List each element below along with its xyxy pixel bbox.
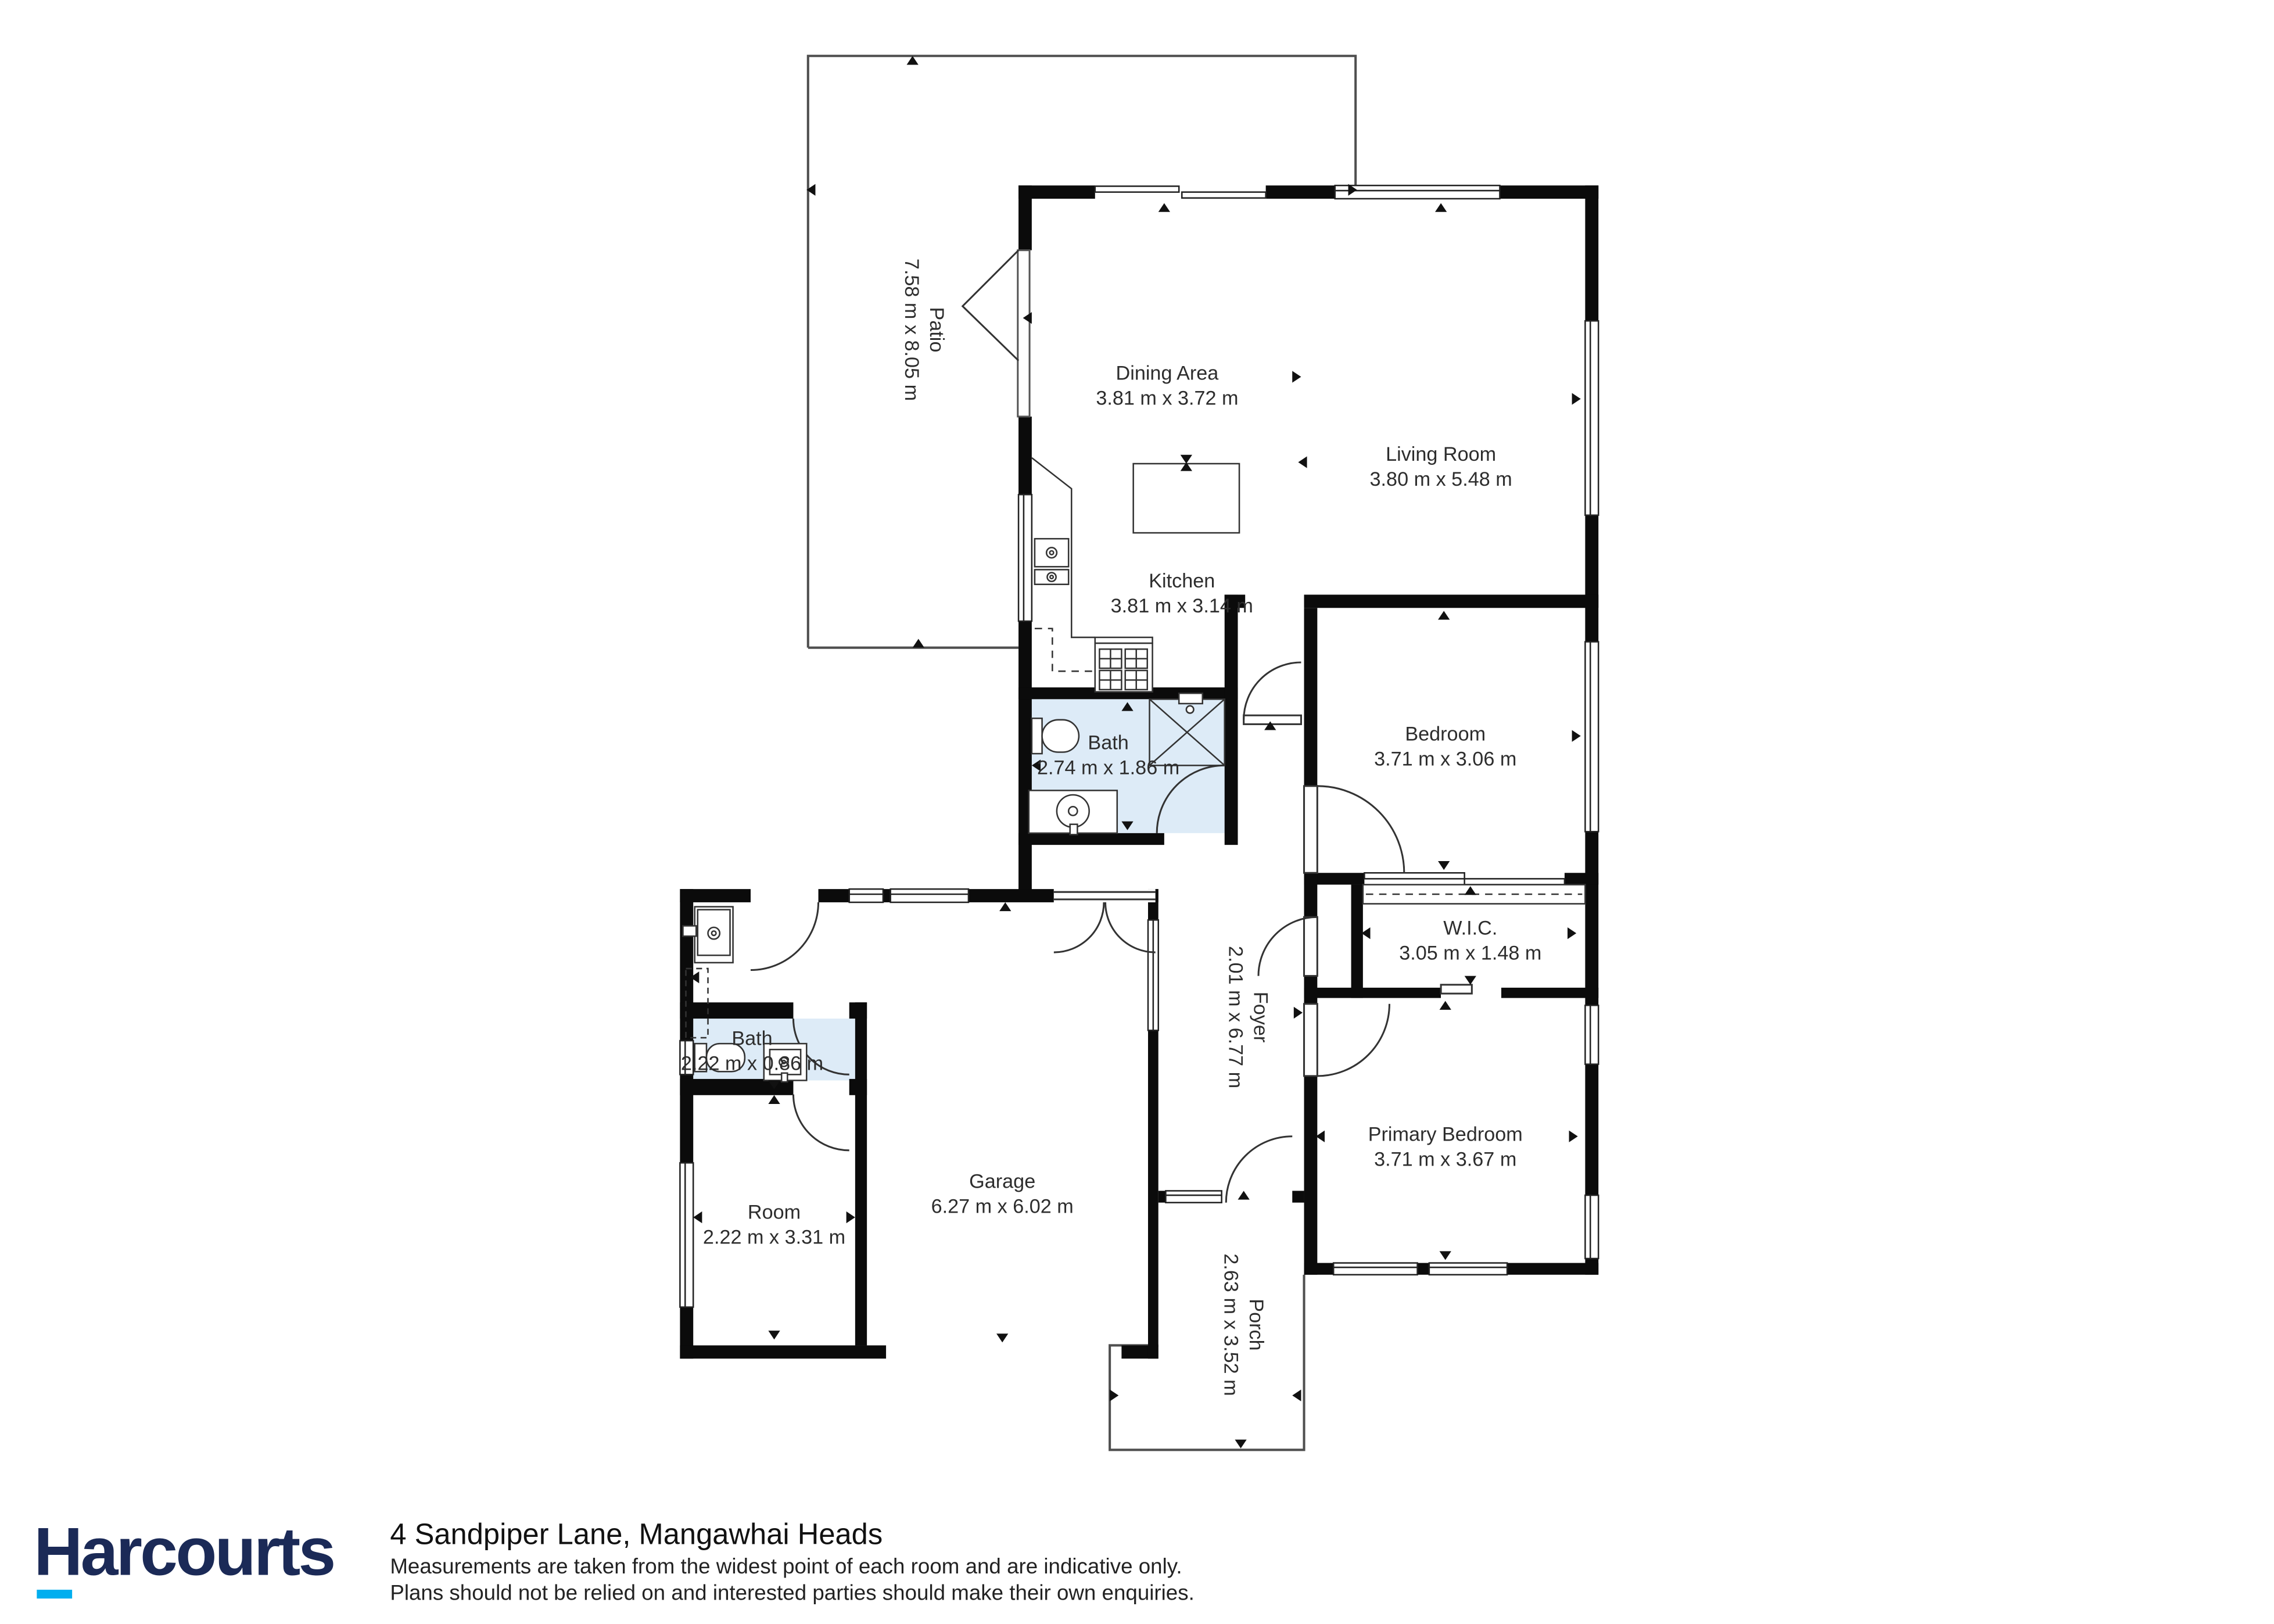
room-label-room: Room2.22 m x 3.31 m — [703, 1200, 845, 1250]
address-title: 4 Sandpiper Lane, Mangawhai Heads — [390, 1519, 1195, 1551]
direction-marker — [907, 56, 919, 64]
room-label-living: Living Room3.80 m x 5.48 m — [1370, 442, 1512, 492]
shower-faucet — [1179, 693, 1203, 704]
porch-outline — [1110, 1275, 1304, 1450]
floorplan-page: Dining Area3.81 m x 3.72 m Living Room3.… — [0, 0, 2274, 1623]
address-block: 4 Sandpiper Lane, Mangawhai Heads Measur… — [390, 1519, 1195, 1607]
room-label-dining: Dining Area3.81 m x 3.72 m — [1096, 361, 1238, 411]
direction-marker — [1158, 203, 1170, 212]
disclaimer-line-1: Measurements are taken from the widest p… — [390, 1554, 1195, 1581]
direction-marker — [1235, 1440, 1246, 1449]
direction-marker — [1292, 1389, 1301, 1401]
room-label-foyer: Foyer2.01 m x 6.77 m — [1223, 946, 1273, 1088]
direction-marker — [913, 639, 924, 647]
room-label-kitchen: Kitchen3.81 m x 3.14 m — [1111, 568, 1253, 618]
harcourts-logo: Harcourts — [34, 1522, 333, 1580]
room-label-garage: Garage6.27 m x 6.02 m — [931, 1168, 1074, 1218]
direction-marker — [1294, 1007, 1303, 1019]
direction-marker — [999, 902, 1011, 911]
direction-marker — [1572, 730, 1581, 742]
direction-marker — [1440, 1251, 1451, 1260]
footer: Harcourts 4 Sandpiper Lane, Mangawhai He… — [0, 1501, 2274, 1623]
direction-marker — [996, 1333, 1008, 1342]
kitchen-island — [1134, 464, 1239, 533]
direction-marker — [1572, 393, 1581, 404]
direction-marker — [1569, 1131, 1578, 1142]
direction-marker — [1438, 861, 1450, 870]
room-label-bath: Bath2.74 m x 1.86 m — [1037, 730, 1179, 780]
direction-marker — [768, 1331, 780, 1339]
direction-marker — [693, 1211, 702, 1223]
room-label-wic: W.I.C.3.05 m x 1.48 m — [1399, 916, 1541, 966]
direction-marker — [1568, 927, 1576, 939]
room-label-patio: Patio7.58 m x 8.05 m — [899, 259, 949, 401]
room-label-porch: Porch2.63 m x 3.52 m — [1219, 1253, 1269, 1396]
direction-marker — [768, 1095, 780, 1104]
room-label-primary-bedroom: Primary Bedroom3.71 m x 3.67 m — [1368, 1121, 1523, 1171]
direction-marker — [1435, 203, 1447, 212]
direction-marker — [1110, 1389, 1118, 1401]
patio-door — [963, 250, 1030, 417]
harcourts-logo-bar — [37, 1590, 72, 1598]
direction-marker — [1292, 371, 1301, 382]
room-label-bedroom: Bedroom3.71 m x 3.06 m — [1374, 721, 1516, 771]
patio-outline — [808, 56, 1355, 647]
direction-marker — [1238, 1191, 1250, 1199]
direction-marker — [1440, 1001, 1451, 1010]
direction-marker — [1438, 611, 1450, 619]
disclaimer: Measurements are taken from the widest p… — [390, 1554, 1195, 1607]
direction-marker — [1465, 976, 1476, 985]
floorplan-drawing — [0, 0, 2274, 1623]
direction-marker — [1298, 456, 1307, 468]
disclaimer-line-2: Plans should not be relied on and intere… — [390, 1581, 1195, 1608]
room-label-bath-2: Bath2.22 m x 0.86 m — [681, 1026, 823, 1076]
direction-marker — [847, 1211, 855, 1223]
